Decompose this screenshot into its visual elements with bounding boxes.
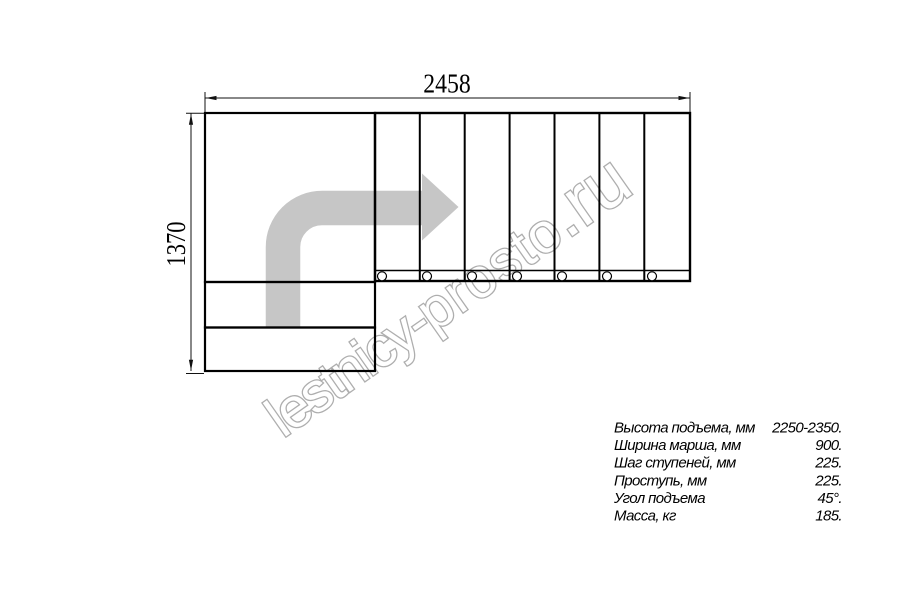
svg-text:900.: 900. (815, 437, 842, 454)
svg-text:225.: 225. (814, 472, 842, 489)
svg-text:185.: 185. (815, 507, 842, 524)
svg-text:1370: 1370 (161, 222, 191, 267)
svg-text:2458: 2458 (423, 69, 471, 99)
svg-text:Угол подъема: Угол подъема (613, 490, 705, 507)
svg-text:45°.: 45°. (818, 490, 842, 507)
svg-text:2250-2350.: 2250-2350. (771, 420, 842, 437)
svg-text:Шаг ступеней, мм: Шаг ступеней, мм (614, 455, 736, 472)
svg-text:Высота подъема, мм: Высота подъема, мм (614, 420, 755, 437)
svg-text:Масса, кг: Масса, кг (614, 507, 677, 524)
svg-text:225.: 225. (814, 455, 842, 472)
svg-text:Проступь, мм: Проступь, мм (614, 472, 707, 489)
svg-text:Ширина марша, мм: Ширина марша, мм (614, 437, 741, 454)
